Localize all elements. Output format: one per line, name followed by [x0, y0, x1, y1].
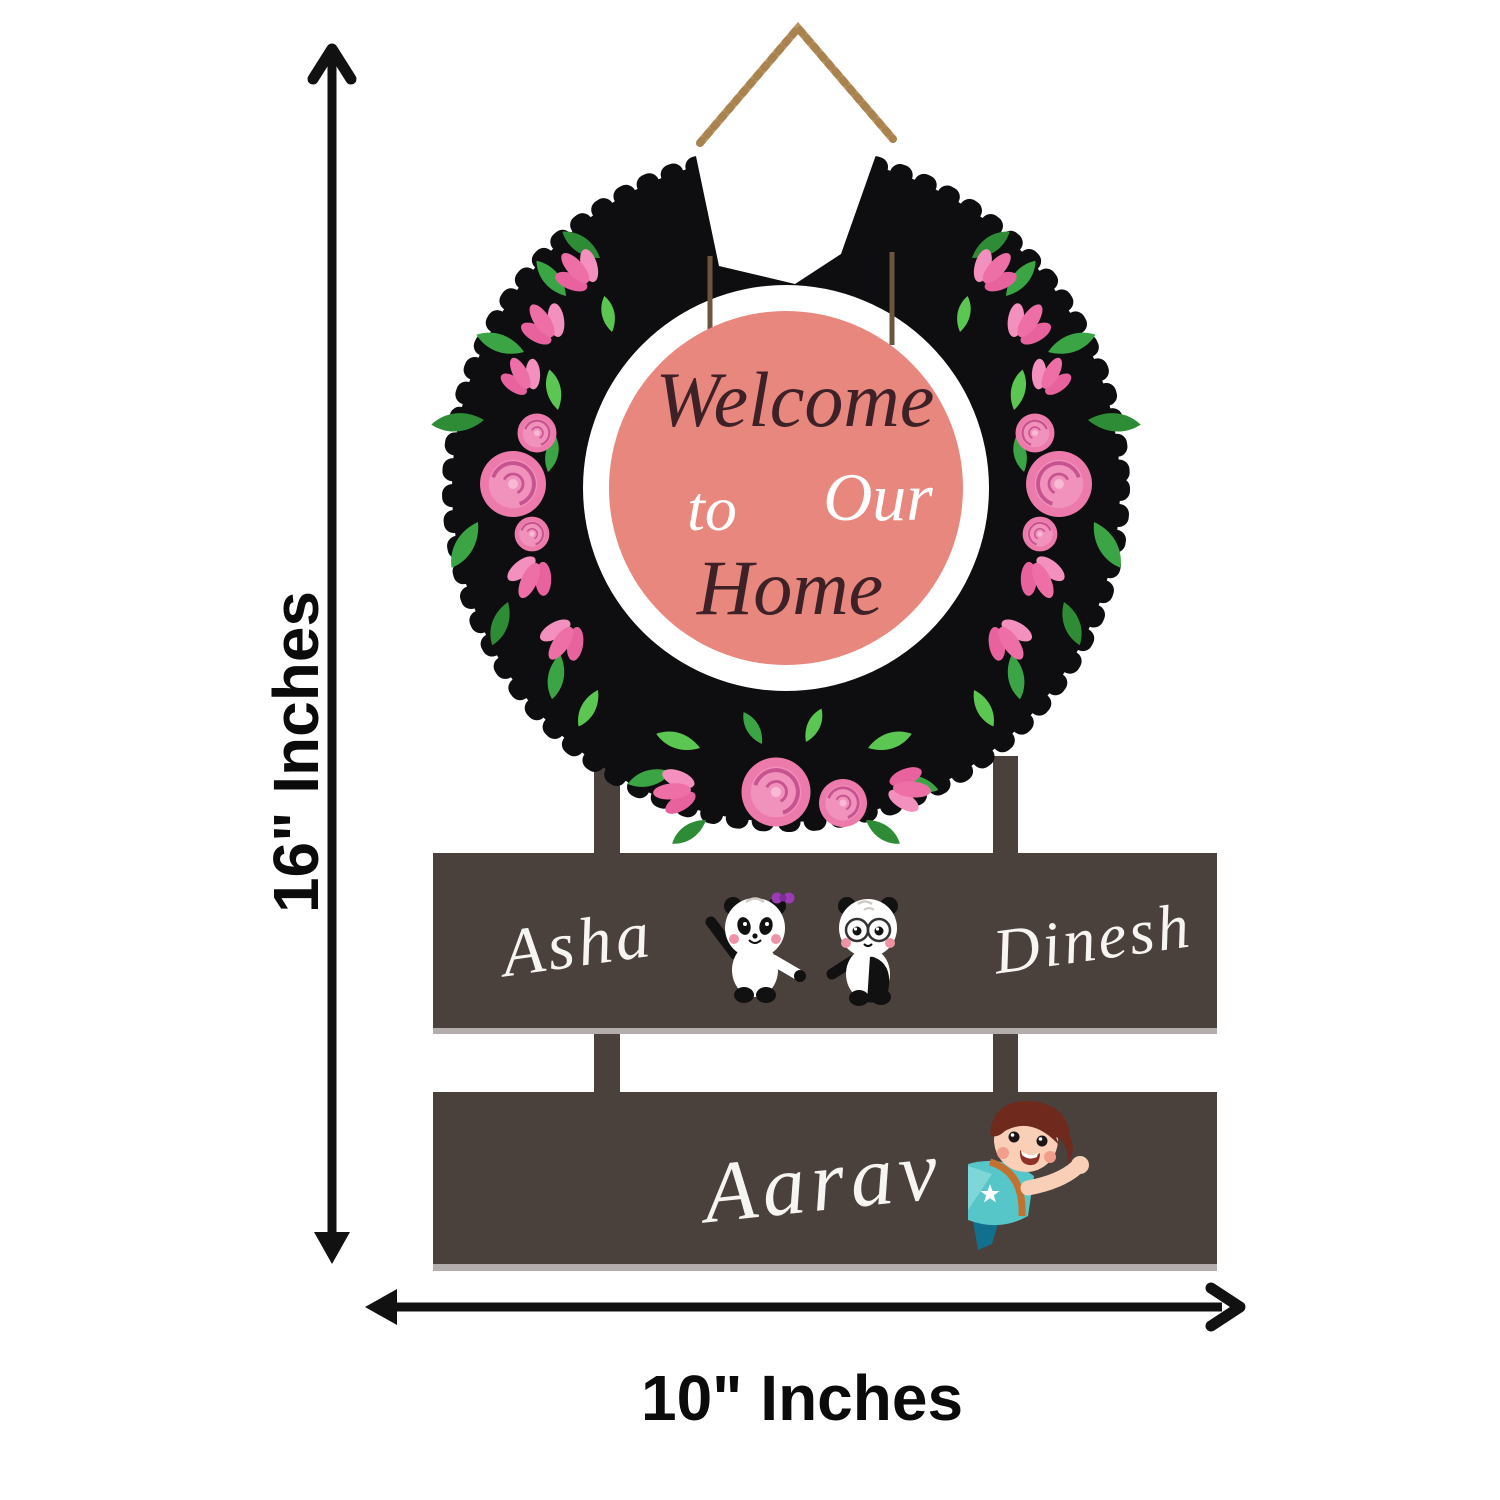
- width-dimension-label: 10" Inches: [641, 1362, 963, 1434]
- name-plank-second: Aarav: [433, 1092, 1217, 1271]
- home-word: Home: [696, 544, 883, 631]
- product-dimension-diagram: Welcome to Our Home: [0, 0, 1500, 1500]
- floral-wreath: Welcome to Our Home: [431, 28, 1142, 850]
- width-dimension-arrow: [365, 1288, 1240, 1326]
- to-word: to: [687, 473, 737, 544]
- arrow-left-head: [365, 1289, 397, 1325]
- plank2-shadow-edge: [433, 1264, 1217, 1271]
- plank1-shadow-edge: [433, 1028, 1217, 1034]
- height-dimension-label: 16" Inches: [260, 591, 332, 913]
- welcome-word: Welcome: [656, 356, 935, 443]
- name-plank-first: Asha Dinesh: [433, 853, 1217, 1034]
- our-word: Our: [823, 459, 933, 535]
- arrow-down-head: [314, 1232, 350, 1264]
- diagram-canvas: Welcome to Our Home: [0, 0, 1500, 1500]
